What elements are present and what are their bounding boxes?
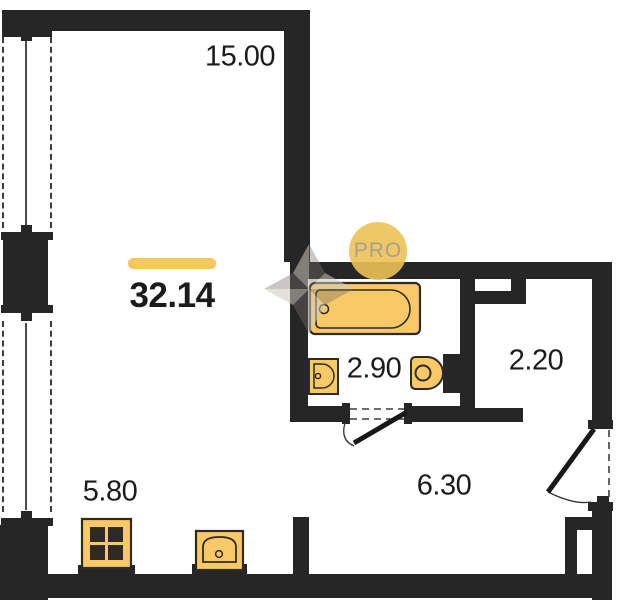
entrance-door xyxy=(548,429,609,503)
area-label-kitchen: 5.80 xyxy=(83,476,137,509)
pro-badge: PRO xyxy=(349,222,407,280)
washbasin xyxy=(309,359,338,394)
stove xyxy=(78,519,135,575)
area-label-bathroom: 2.90 xyxy=(347,353,401,386)
entrance-door-arc xyxy=(548,492,591,503)
total-area-accent-bar xyxy=(128,258,216,269)
toilet xyxy=(411,354,460,393)
floorplan: PRO 15.00 32.14 2.90 2.20 5.80 6.30 xyxy=(0,0,617,600)
pro-badge-label: PRO xyxy=(354,239,403,263)
total-area-label: 32.14 xyxy=(129,276,214,316)
fixtures-layer xyxy=(0,0,617,600)
area-label-corridor: 6.30 xyxy=(417,470,471,503)
area-label-living: 15.00 xyxy=(205,41,275,74)
bathroom-door xyxy=(344,409,407,446)
area-label-hall: 2.20 xyxy=(509,345,563,378)
bathroom-door-leaf xyxy=(354,412,407,443)
bathroom-door-arc xyxy=(344,423,354,446)
entrance-door-leaf xyxy=(548,429,594,492)
kitchen-sink xyxy=(192,531,247,574)
